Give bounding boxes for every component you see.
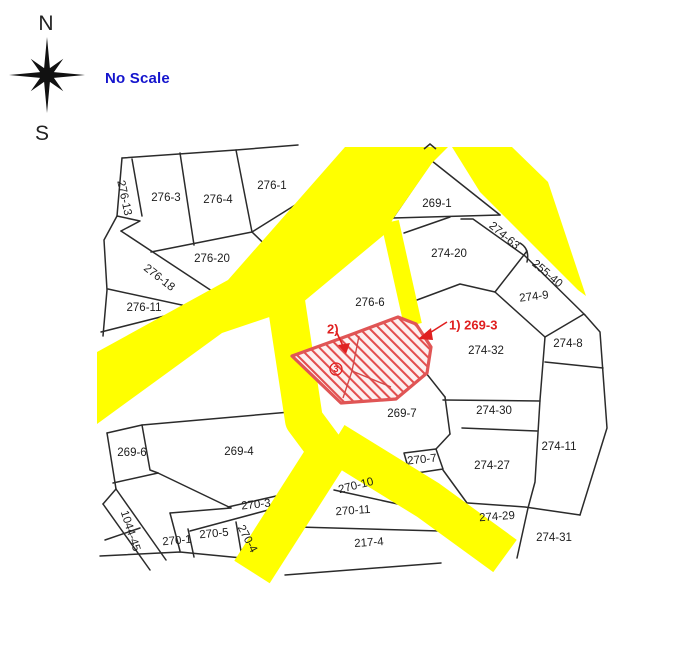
highlight-annotation-1-269-3: 1) 269-3 (449, 317, 497, 332)
parcel-label-274-9: 274-9 (519, 289, 550, 304)
road-stub-center (390, 222, 413, 325)
parcel-label-270-10: 270-10 (337, 476, 375, 496)
highlight-annotation-3: 3 (333, 364, 338, 374)
parcel-label-274-27: 274-27 (474, 460, 510, 472)
compass-south-label: S (35, 122, 49, 145)
cadastral-map-page: N S 276-13276-3276-4276-1276-20276-18276… (0, 0, 700, 666)
parcel-label-276-11: 276-11 (127, 302, 162, 314)
parcel-label-276-4: 276-4 (203, 194, 233, 206)
compass-north-label: N (38, 12, 53, 35)
parcel-label-276-3: 276-3 (151, 192, 180, 204)
no-scale-note: No Scale (105, 70, 170, 87)
parcel-label-270-5: 270-5 (199, 527, 229, 542)
parcel-label-274-31: 274-31 (536, 532, 572, 544)
road-northeast (452, 147, 586, 296)
parcel-label-217-4: 217-4 (354, 536, 385, 550)
parcel-label-274-8: 274-8 (553, 338, 582, 350)
parcel-label-274-20: 274-20 (431, 248, 467, 260)
cadastral-map: N S 276-13276-3276-4276-1276-20276-18276… (0, 0, 700, 666)
parcel-label-274-32: 274-32 (468, 345, 504, 357)
parcel-label-274-11: 274-11 (542, 441, 577, 453)
parcel-label-269-1: 269-1 (422, 198, 451, 210)
parcel-label-276-1: 276-1 (257, 180, 286, 192)
parcel-label-269-6: 269-6 (117, 447, 146, 459)
parcel-label-270-1: 270-1 (162, 534, 192, 549)
parcel-label-274-30: 274-30 (476, 405, 512, 417)
parcel-label-269-7: 269-7 (387, 408, 416, 420)
parcel-label-276-6: 276-6 (355, 297, 384, 309)
parcel-label-274-29: 274-29 (479, 510, 516, 524)
parcel-label-276-20: 276-20 (194, 253, 230, 265)
highlight-annotation-2-: 2) (327, 321, 339, 336)
parcel-label-269-4: 269-4 (224, 446, 254, 458)
compass-star-icon (9, 37, 85, 113)
parcel-label-276-18: 276-18 (141, 262, 177, 294)
parcel-label-270-7: 270-7 (407, 453, 438, 468)
compass: N S (9, 12, 85, 145)
parcel-label-270-11: 270-11 (335, 504, 371, 518)
